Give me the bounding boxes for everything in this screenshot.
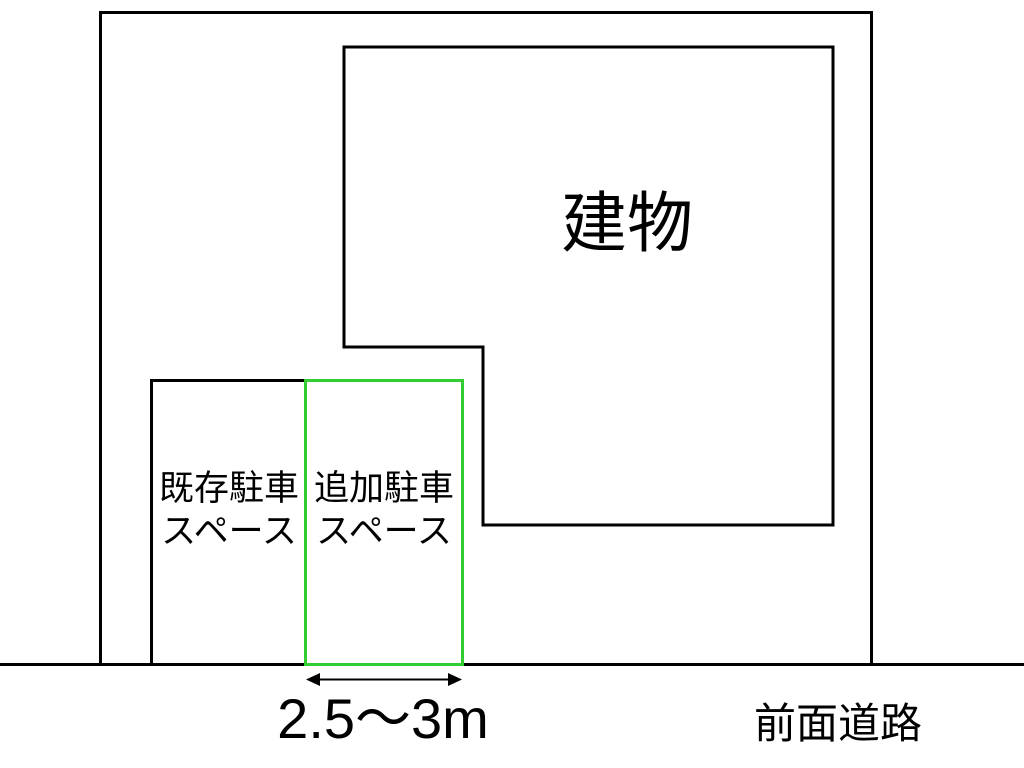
building-label: 建物 [497, 184, 757, 262]
dimension-label: 2.5〜3m [233, 688, 533, 750]
additional-parking-label-line1: 追加駐車 [304, 467, 464, 510]
road-line [0, 663, 1024, 666]
existing-parking-label-line1: 既存駐車 [150, 467, 308, 510]
front-road-label: 前面道路 [738, 700, 938, 748]
existing-parking-label-line2: スペース [150, 510, 308, 553]
existing-parking-label: 既存駐車 スペース [150, 467, 308, 553]
additional-parking-label-line2: スペース [304, 510, 464, 553]
dimension-arrow [306, 673, 462, 686]
site-plan-diagram: 建物 既存駐車 スペース 追加駐車 スペース 2.5〜3m 前面道路 [0, 0, 1024, 768]
additional-parking-label: 追加駐車 スペース [304, 467, 464, 553]
